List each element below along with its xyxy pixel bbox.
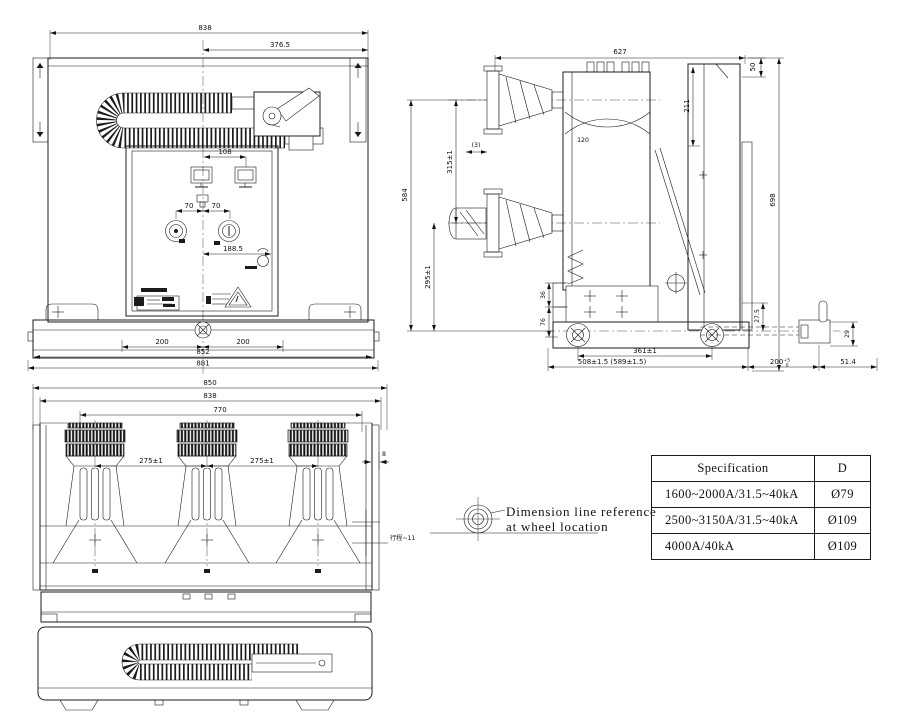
dim-295-label: 295±1 bbox=[424, 265, 432, 289]
engineering-drawing-canvas: 838 376.5 bbox=[0, 0, 897, 713]
frame-column bbox=[655, 64, 752, 330]
spec-cell: 1600~2000A/31.5~40kA bbox=[652, 482, 815, 508]
note-line-1: Dimension line reference bbox=[506, 504, 657, 519]
dim-70-right-label: 70 bbox=[212, 202, 221, 210]
spring bbox=[568, 250, 583, 284]
dim-8-label: 8 bbox=[382, 451, 386, 458]
keyhole bbox=[258, 256, 269, 267]
spec-cell: 2500~3150A/31.5~40kA bbox=[652, 508, 815, 534]
nameplate bbox=[134, 288, 179, 310]
pole-assembly-3 bbox=[276, 420, 360, 573]
warning-triangle-icon bbox=[206, 287, 251, 307]
dim-3-label: (3) bbox=[472, 142, 481, 149]
spec-cell: 4000A/40kA bbox=[652, 534, 815, 560]
left-rail bbox=[33, 58, 48, 142]
dim-852-label: 852 bbox=[196, 348, 209, 356]
table-row: 2500~3150A/31.5~40kA Ø109 bbox=[652, 508, 871, 534]
dim-275-left-label: 275±1 bbox=[139, 457, 163, 465]
dim-27-5-label: 27.5 bbox=[754, 309, 761, 323]
note-line-2: at wheel location bbox=[506, 519, 657, 534]
lever-mechanism bbox=[254, 88, 320, 136]
dim-108-label: 108 bbox=[218, 148, 231, 156]
dim-376-5-label: 376.5 bbox=[270, 41, 290, 49]
blueprint-page: 838 376.5 bbox=[0, 0, 897, 713]
indicator-window-right bbox=[235, 167, 256, 187]
dim-29-label: 29 bbox=[844, 330, 851, 338]
button-left bbox=[166, 221, 187, 244]
table-header-row: Specification D bbox=[652, 456, 871, 482]
bottom-view-drawing bbox=[38, 627, 372, 710]
dim-275-right-label: 275±1 bbox=[250, 457, 274, 465]
front-panel: 108 70 70 bbox=[126, 146, 278, 316]
front-view-drawing: 850 838 770 bbox=[33, 379, 415, 710]
dim-36-label: 36 bbox=[540, 291, 547, 299]
dim-211-label: 211 bbox=[683, 99, 691, 112]
drawer-section bbox=[41, 592, 371, 622]
cross-plate bbox=[553, 283, 658, 322]
button-right bbox=[214, 221, 240, 246]
dim-850-label: 850 bbox=[203, 379, 216, 387]
dim-584-label: 584 bbox=[401, 188, 409, 202]
right-rail bbox=[350, 58, 366, 142]
d-column-header: D bbox=[815, 456, 871, 482]
spec-column-header: Specification bbox=[652, 456, 815, 482]
d-cell: Ø79 bbox=[815, 482, 871, 508]
dim-881-label: 881 bbox=[196, 360, 209, 368]
dim-315-label: 315±1 bbox=[446, 150, 454, 174]
d-cell: Ø109 bbox=[815, 534, 871, 560]
side-view-drawing: 627 50 698 bbox=[401, 48, 877, 371]
pole-housing bbox=[563, 62, 650, 290]
d-cell: Ø109 bbox=[815, 508, 871, 534]
dim-838-top-label: 838 bbox=[198, 24, 211, 32]
dim-200-right-label: 200 bbox=[236, 338, 249, 346]
dim-838-front-label: 838 bbox=[203, 392, 216, 400]
pole-assembly-2 bbox=[165, 420, 249, 573]
wheel-reference-note: Dimension line reference at wheel locati… bbox=[506, 504, 657, 534]
dim-361-label: 361±1 bbox=[633, 347, 657, 355]
table-row: 1600~2000A/31.5~40kA Ø79 bbox=[652, 482, 871, 508]
dim-698-label: 698 bbox=[769, 193, 777, 206]
pole-assembly-1 bbox=[53, 420, 137, 573]
top-view-drawing: 838 376.5 bbox=[28, 24, 379, 374]
dim-627-label: 627 bbox=[613, 48, 626, 56]
spec-table: Specification D 1600~2000A/31.5~40kA Ø79… bbox=[651, 455, 871, 560]
dim-70-left-label: 70 bbox=[185, 202, 194, 210]
table-row: 4000A/40kA Ø109 bbox=[652, 534, 871, 560]
dim-188-5-label: 188.5 bbox=[223, 245, 243, 253]
dim-770-label: 770 bbox=[213, 406, 226, 414]
dim-120-label: 120 bbox=[577, 137, 589, 144]
dim-51-4-label: 51.4 bbox=[840, 358, 856, 366]
dim-76-label: 76 bbox=[540, 318, 547, 326]
upper-bushing bbox=[484, 66, 563, 134]
dim-508-label: 508±1.5 (589±1.5) bbox=[578, 358, 647, 366]
dim-200-left-label: 200 bbox=[155, 338, 168, 346]
stroke-annotation-label: 行程~11 bbox=[390, 534, 415, 542]
indicator-window-left bbox=[191, 167, 212, 187]
dim-50-label: 50 bbox=[749, 63, 757, 72]
